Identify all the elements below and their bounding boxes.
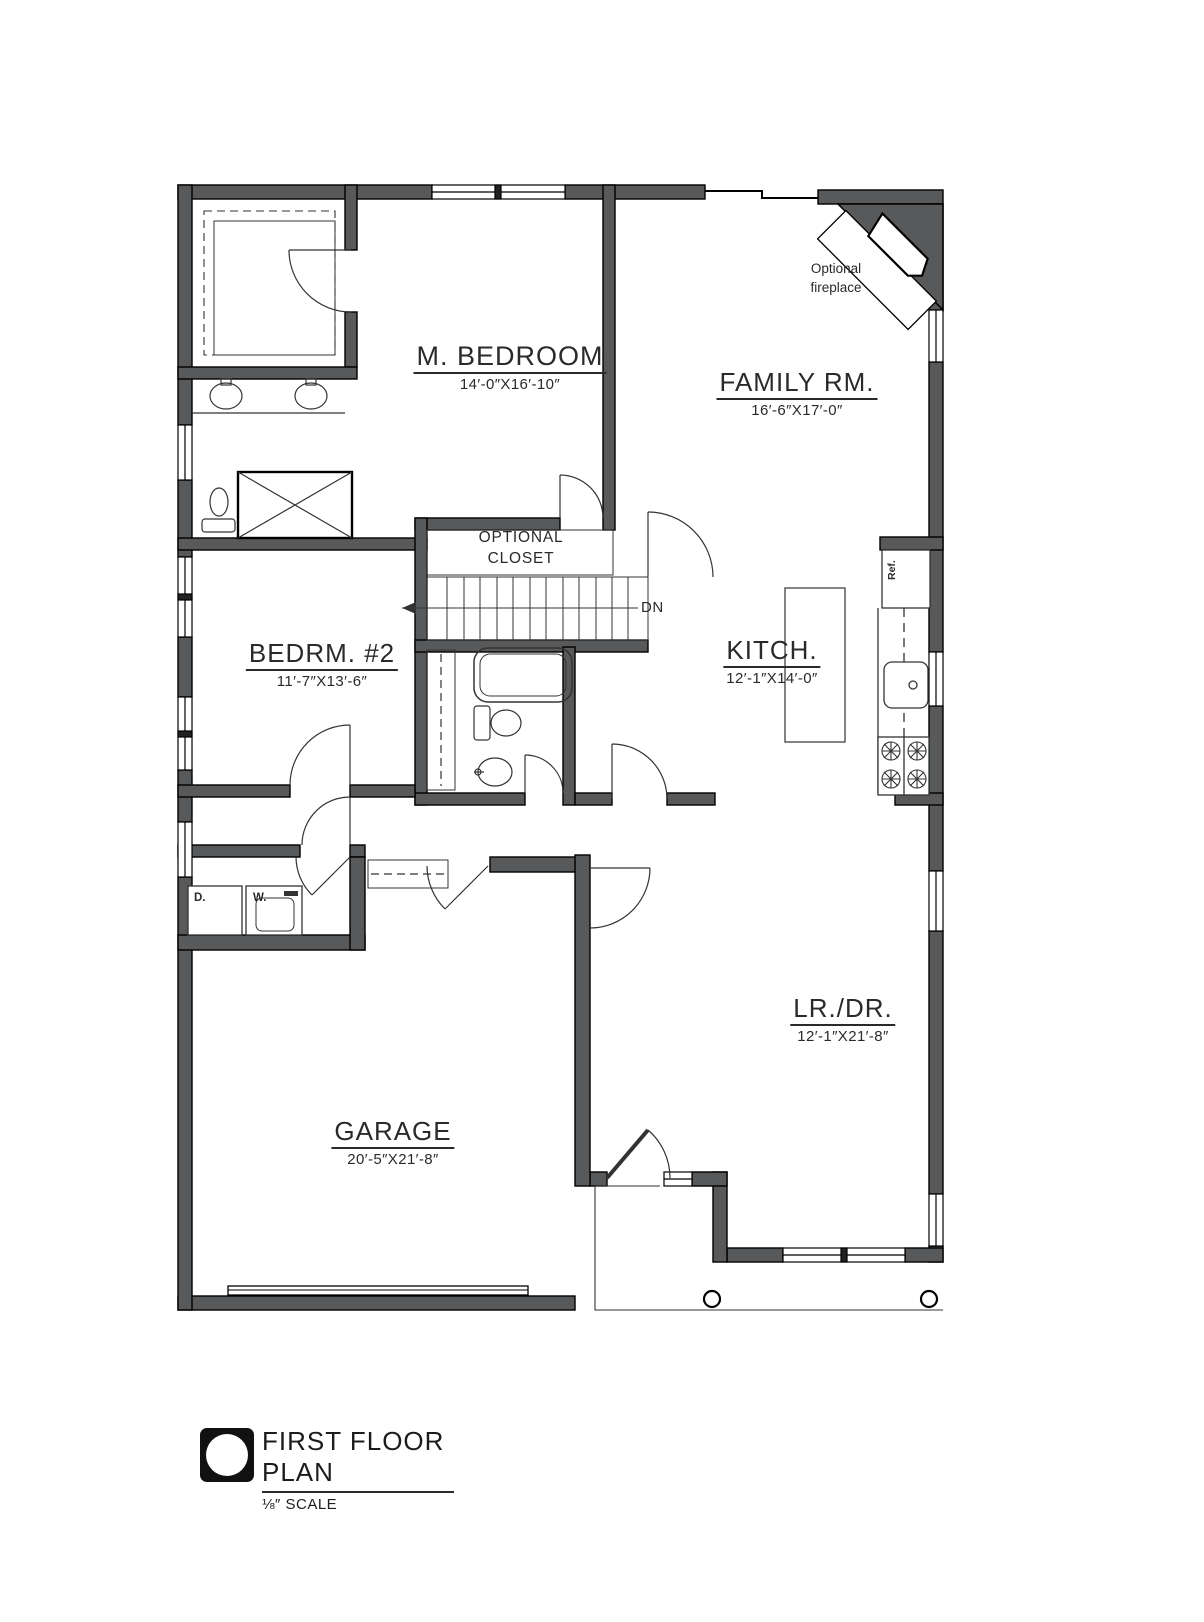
porch-column	[921, 1291, 937, 1307]
room-label-m-bedroom: M. BEDROOM 14′-0″X16′-10″	[413, 342, 606, 393]
plan-title: FIRST FLOOR PLAN	[262, 1426, 454, 1493]
garage-door	[228, 1286, 528, 1295]
room-dims: 20′-5″X21′-8″	[331, 1151, 454, 1168]
master-bath-fixtures	[192, 379, 352, 538]
note-line: Optional	[811, 261, 861, 276]
room-dims: 12′-1″X21′-8″	[790, 1028, 895, 1045]
note-line: OPTIONAL	[479, 529, 564, 546]
stairs-down-arrow	[402, 602, 416, 614]
dryer-label: D.	[194, 892, 206, 904]
room-dims: 16′-6″X17′-0″	[717, 402, 878, 419]
washer-label: W.	[253, 892, 266, 904]
wall-step-line	[705, 191, 818, 198]
floor-plan-sheet: M. BEDROOM 14′-0″X16′-10″ FAMILY RM. 16′…	[0, 0, 1204, 1622]
porch-column	[704, 1291, 720, 1307]
floor-plan-drawing	[0, 0, 1204, 1622]
room-name: KITCH.	[723, 637, 820, 668]
room-dims: 11′-7″X13′-6″	[246, 673, 398, 690]
optional-fireplace-note: Optional fireplace	[810, 260, 861, 298]
note-line: fireplace	[810, 280, 861, 295]
room-name: FAMILY RM.	[717, 369, 878, 400]
room-dims: 12′-1″X14′-0″	[723, 670, 820, 687]
refrigerator-label: Ref.	[886, 560, 898, 580]
room-name: LR./DR.	[790, 995, 895, 1026]
room-name: M. BEDROOM	[413, 342, 606, 374]
room-label-kitchen: KITCH. 12′-1″X14′-0″	[723, 637, 820, 687]
note-line: CLOSET	[488, 550, 555, 567]
room-label-garage: GARAGE 20′-5″X21′-8″	[331, 1118, 454, 1168]
plan-scale: ⅛″ SCALE	[262, 1496, 454, 1513]
room-label-family-rm: FAMILY RM. 16′-6″X17′-0″	[717, 369, 878, 419]
optional-closet-note: OPTIONAL CLOSET	[479, 528, 564, 570]
bath2-fixtures	[427, 648, 572, 790]
title-block-logo-circle	[206, 1434, 248, 1476]
kitchen-sink	[884, 662, 928, 708]
title-block-logo	[200, 1428, 254, 1482]
room-name: GARAGE	[331, 1118, 454, 1149]
room-dims: 14′-0″X16′-10″	[413, 376, 606, 393]
stairs	[402, 577, 648, 640]
laundry-fixtures	[188, 860, 448, 935]
room-name: BEDRM. #2	[246, 640, 398, 671]
stairs-dn-label: DN	[641, 599, 664, 616]
walk-in-closet	[204, 211, 335, 355]
room-label-bedrm-2: BEDRM. #2 11′-7″X13′-6″	[246, 640, 398, 690]
room-label-lr-dr: LR./DR. 12′-1″X21′-8″	[790, 995, 895, 1045]
